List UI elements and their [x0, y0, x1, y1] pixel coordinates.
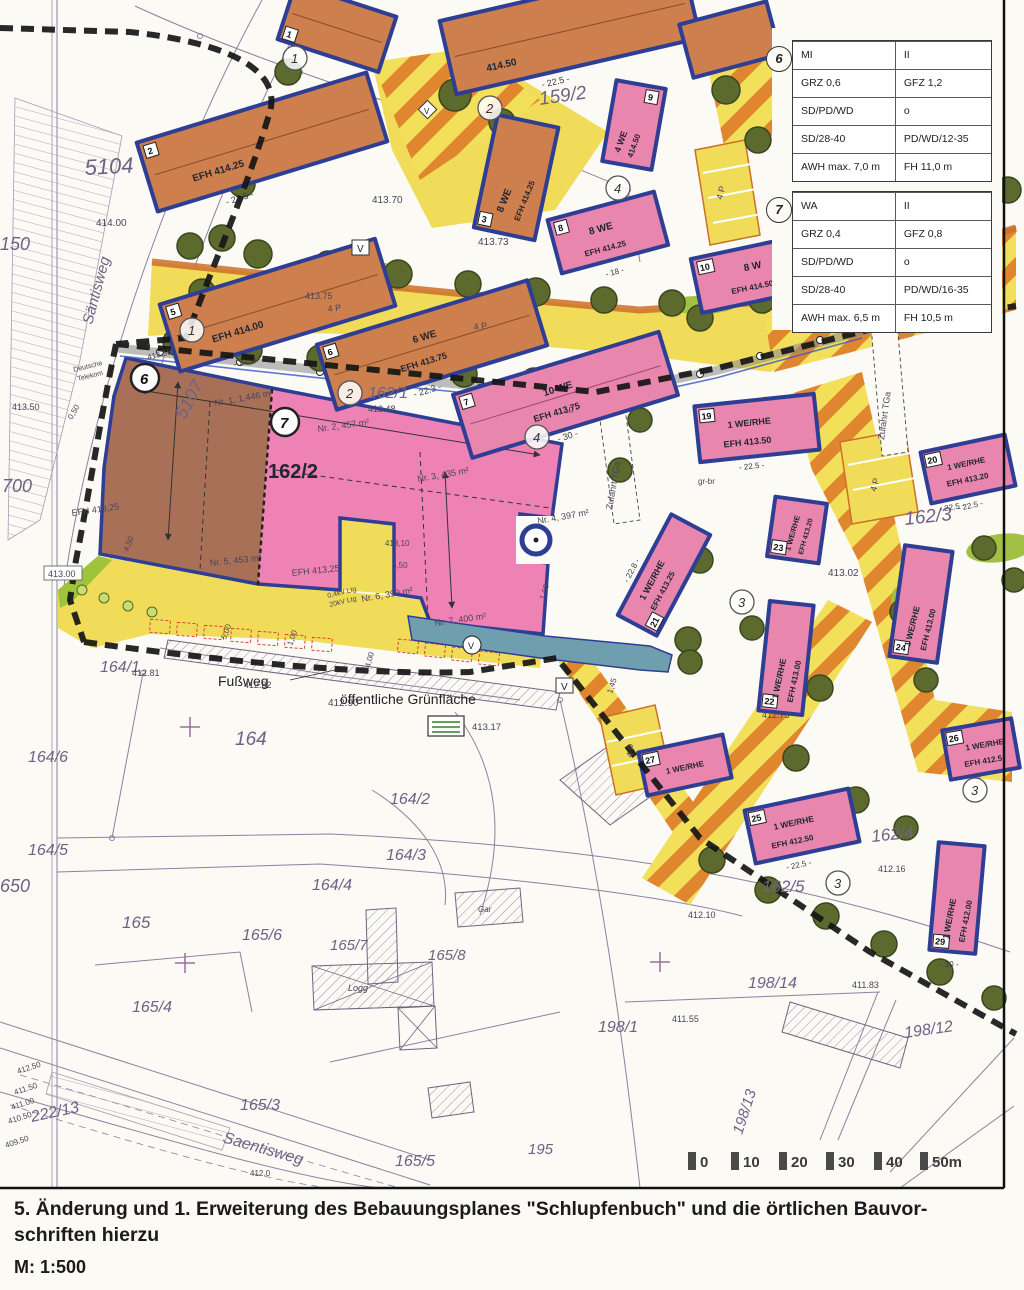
legend-cell: GRZ 0,4: [793, 221, 895, 248]
elev-413-17: 413.17: [472, 722, 501, 733]
elev-411-55: 411.55: [672, 1014, 699, 1024]
zone-marker-6: 6: [140, 371, 149, 388]
legend-cell: GRZ 0,6: [793, 70, 895, 97]
circle-4a: 4: [614, 181, 621, 196]
v-sign-1: V: [357, 244, 364, 255]
chip-10: 10: [699, 261, 711, 273]
legend-cell: GFZ 0,8: [895, 221, 991, 248]
chip-19: 19: [701, 411, 712, 422]
parcel-164-6: 164/6: [28, 749, 68, 766]
legend-cell: GFZ 1,2: [895, 70, 991, 97]
scale-tick-50: 50m: [932, 1154, 962, 1171]
scale-tick-0: 0: [700, 1154, 708, 1171]
plan-sheet: 1 2 EFH 414.25 - 22.5 - 414.50 - 22.5 - …: [0, 0, 1024, 1290]
label-gr-br: gr-br: [698, 477, 715, 486]
legend-cell: II: [895, 42, 991, 69]
parcel-650: 650: [0, 876, 30, 896]
parcel-164: 164: [235, 729, 267, 750]
title-line-2: schriften hierzu: [14, 1224, 159, 1246]
legend-cell: o: [895, 249, 991, 276]
parcel-165-3: 165/3: [240, 1097, 280, 1114]
parcel-165-7: 165/7: [330, 937, 368, 954]
elev-413-70: 413.70: [372, 195, 403, 206]
parcel-700: 700: [2, 476, 32, 496]
scale-tick-30: 30: [838, 1154, 855, 1171]
elev-413-00: 413.00: [48, 569, 76, 579]
elev-411-83: 411.83: [852, 980, 879, 990]
parcel-165-6: 165/6: [242, 927, 282, 944]
circle-4b: 4: [533, 430, 540, 445]
parcel-198-14: 198/14: [748, 975, 797, 992]
elev-412-10: 412.10: [688, 910, 716, 920]
scale-tick-20: 20: [791, 1154, 808, 1171]
legend-cell: SD/PD/WD: [793, 98, 895, 125]
parcel-198-1: 198/1: [598, 1019, 638, 1036]
legend-cell: PD/WD/16-35: [895, 277, 991, 304]
parcel-5104: 5104: [84, 152, 134, 180]
circle-3a: 3: [738, 595, 746, 610]
legend-marker-6: 6: [766, 46, 792, 72]
parcel-164-3: 164/3: [386, 847, 426, 864]
v-sign-3: V: [424, 107, 430, 116]
label-gruenflaeche: öffentliche Grünfläche: [340, 691, 476, 707]
chip-27: 27: [644, 754, 656, 766]
elev-412-90: 412.90: [328, 698, 359, 709]
legend-cell: FH 10,5 m: [895, 305, 991, 332]
zone-marker-7: 7: [280, 415, 289, 432]
chip-23: 23: [773, 542, 784, 553]
circle-1a: 1: [291, 51, 298, 66]
label-logg: Logg: [348, 983, 368, 993]
building-29: 29 1 WE/RHE EFH 412.00 - 10 -: [928, 842, 985, 972]
parcel-164-4: 164/4: [312, 877, 352, 894]
elev-413-48: 413.48: [368, 404, 396, 414]
parcel-164-5: 164/5: [28, 842, 68, 859]
legend-cell: WA: [793, 193, 895, 220]
parcel-165: 165: [122, 913, 151, 932]
legend-cell: AWH max. 7,0 m: [793, 154, 895, 181]
v-sign-2: V: [561, 682, 568, 693]
scale-tick-40: 40: [886, 1154, 903, 1171]
dim-5-50: 5,50: [392, 561, 408, 570]
legend-cell: FH 11,0 m: [895, 154, 991, 181]
building-26: 26 1 WE/RHE EFH 412.5: [942, 718, 1020, 779]
chip-26: 26: [948, 733, 960, 745]
building-22: 22 1 WE/RHE EFH 413.00: [758, 601, 813, 715]
parcel-165-5: 165/5: [395, 1153, 435, 1170]
parcel-162-1: 162/1: [368, 385, 408, 402]
elev-412-81: 412.81: [132, 668, 160, 678]
legend-cell: MI: [793, 42, 895, 69]
v-sign-4: V: [468, 641, 474, 651]
scale-label: M: 1:500: [14, 1257, 1004, 1278]
legend-cell: SD/28-40: [793, 126, 895, 153]
elev-413-73: 413.73: [478, 237, 509, 248]
legend-cell: PD/WD/12-35: [895, 126, 991, 153]
legend: 6 MIII GRZ 0,6GFZ 1,2 SD/PD/WDo SD/28-40…: [792, 40, 992, 342]
circle-3c: 3: [834, 876, 842, 891]
building-29-dim: - 10 -: [940, 960, 959, 969]
parking-6: 4 P: [473, 320, 488, 332]
parcel-195: 195: [528, 1141, 554, 1158]
circle-1b: 1: [188, 323, 195, 338]
elev-412-82: 412.82: [244, 680, 272, 690]
parcel-162-2: 162/2: [268, 461, 318, 483]
elev-414-00: 414.00: [96, 218, 127, 229]
legend-cell: AWH max. 6,5 m: [793, 305, 895, 332]
parcel-164-2: 164/2: [390, 791, 430, 808]
legend-table-wa: 7 WAII GRZ 0,4GFZ 0,8 SD/PD/WDo SD/28-40…: [792, 191, 992, 333]
legend-cell: o: [895, 98, 991, 125]
parcel-165-8: 165/8: [428, 947, 466, 964]
legend-cell: II: [895, 193, 991, 220]
elev-413-50: 413.50: [12, 402, 40, 412]
elev-412-0: 412.0: [250, 1169, 271, 1178]
dim-413-10: 413,10: [385, 539, 410, 548]
parking-5: 4 P: [327, 302, 342, 314]
circle-3b: 3: [971, 783, 979, 798]
legend-table-mi: 6 MIII GRZ 0,6GFZ 1,2 SD/PD/WDo SD/28-40…: [792, 40, 992, 182]
scale-tick-10: 10: [743, 1154, 760, 1171]
parcel-150: 150: [0, 234, 30, 254]
parcel-162-5: 162/5: [762, 877, 805, 896]
title-line-1: 5. Änderung und 1. Erweiterung des Bebau…: [14, 1198, 927, 1220]
parcel-165-4: 165/4: [132, 999, 172, 1016]
chip-20: 20: [926, 454, 938, 466]
elev-412-73: 412.73: [762, 710, 790, 720]
legend-cell: SD/PD/WD: [793, 249, 895, 276]
circle-2a: 2: [485, 101, 494, 116]
elev-412-16: 412.16: [878, 864, 906, 874]
elev-413-75: 413.75: [305, 291, 333, 301]
legend-cell: SD/28-40: [793, 277, 895, 304]
chip-25: 25: [750, 812, 762, 824]
elev-413-02: 413.02: [828, 568, 859, 579]
label-gar: Gar: [478, 905, 492, 914]
circle-2b: 2: [345, 386, 354, 401]
legend-marker-7: 7: [766, 197, 792, 223]
building-23: 23 1 WE/RHE EFH 413.20: [767, 497, 827, 564]
title-block: 5. Änderung und 1. Erweiterung des Bebau…: [14, 1196, 1004, 1278]
